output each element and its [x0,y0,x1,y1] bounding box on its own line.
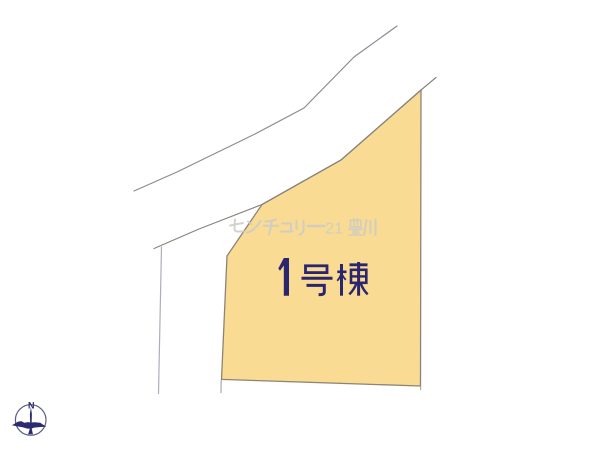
svg-text:21: 21 [325,221,343,238]
svg-text:N: N [28,401,35,411]
